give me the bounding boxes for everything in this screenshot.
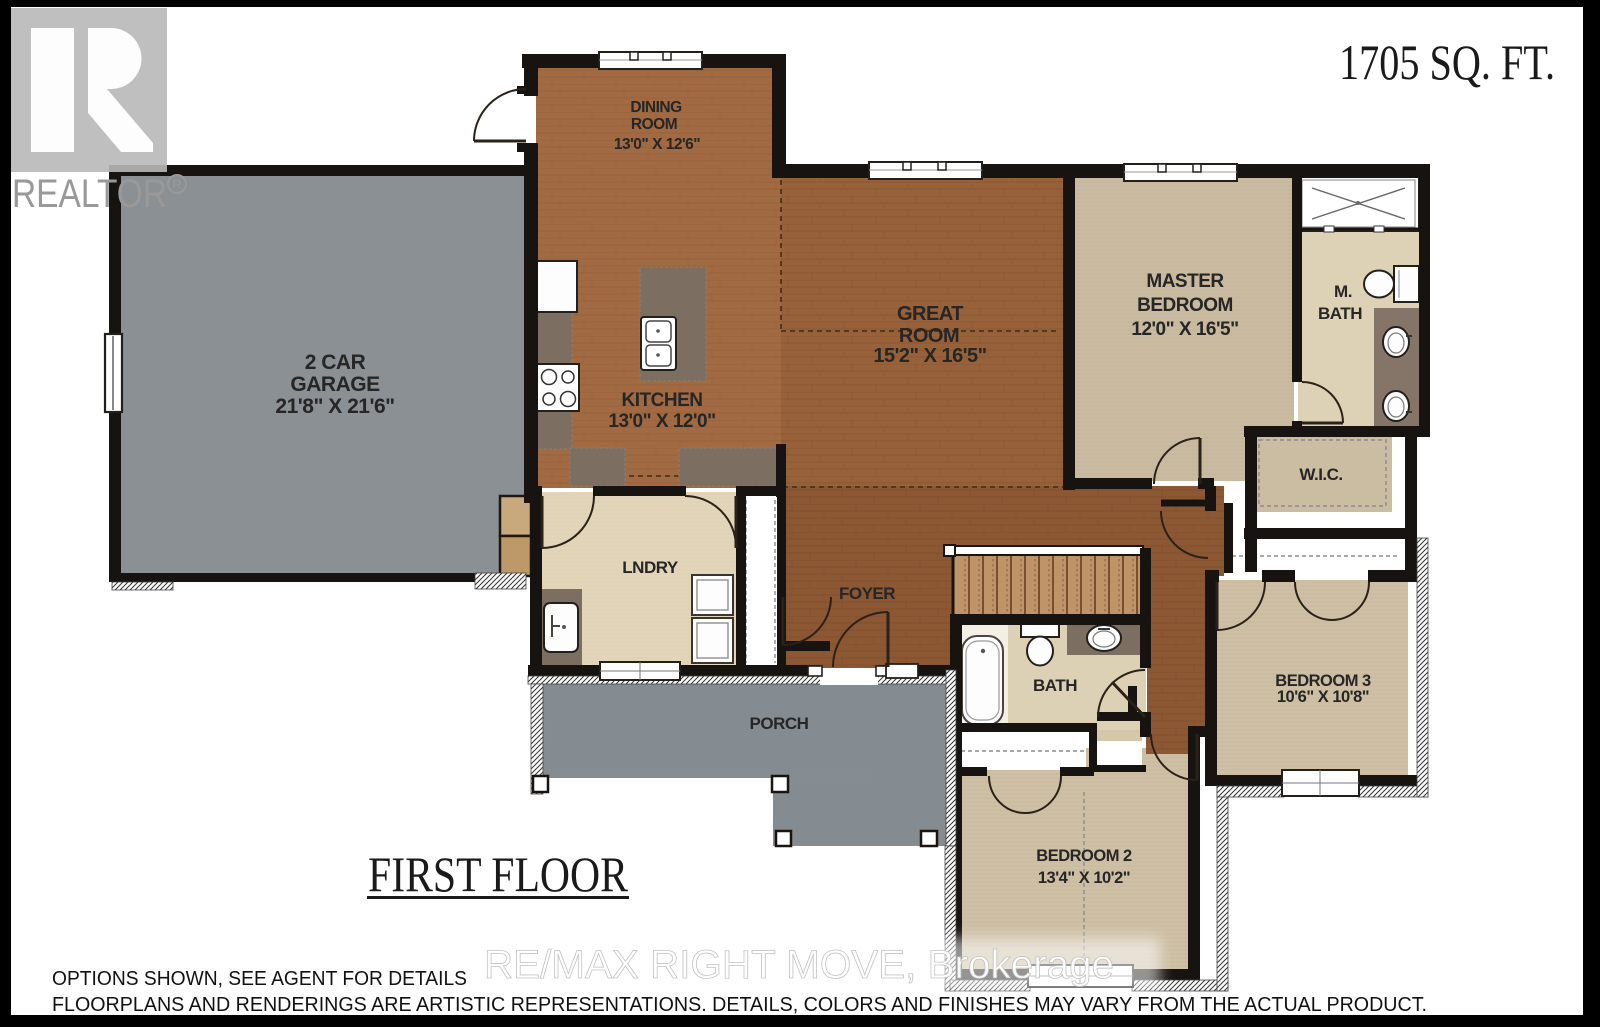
svg-text:LNDRY: LNDRY	[622, 558, 679, 577]
svg-text:BATH: BATH	[1033, 676, 1077, 695]
svg-text:GARAGE: GARAGE	[290, 373, 380, 396]
svg-text:R: R	[172, 177, 181, 192]
svg-text:ROOM: ROOM	[631, 116, 677, 133]
svg-text:BATH: BATH	[1318, 304, 1362, 323]
svg-text:FOYER: FOYER	[839, 584, 895, 603]
svg-text:13'0" X 12'0": 13'0" X 12'0"	[608, 411, 715, 432]
svg-text:10'6" X 10'8": 10'6" X 10'8"	[1277, 688, 1369, 706]
svg-text:PORCH: PORCH	[750, 714, 809, 733]
svg-text:15'2" X 16'5": 15'2" X 16'5"	[873, 345, 986, 367]
svg-text:KITCHEN: KITCHEN	[622, 390, 703, 411]
svg-text:W.I.C.: W.I.C.	[1299, 465, 1342, 484]
svg-text:DINING: DINING	[630, 99, 682, 116]
svg-text:21'8" X 21'6": 21'8" X 21'6"	[275, 395, 394, 418]
svg-text:12'0" X 16'5": 12'0" X 16'5"	[1131, 319, 1238, 340]
svg-text:BEDROOM: BEDROOM	[1137, 295, 1233, 316]
svg-text:MASTER: MASTER	[1146, 271, 1224, 292]
svg-text:ROOM: ROOM	[899, 325, 959, 347]
svg-text:2 CAR: 2 CAR	[305, 351, 366, 374]
svg-text:13'4" X 10'2": 13'4" X 10'2"	[1038, 869, 1130, 887]
svg-text:1705 SQ. FT.: 1705 SQ. FT.	[1339, 34, 1555, 90]
svg-text:M.: M.	[1334, 282, 1352, 301]
svg-text:BEDROOM 2: BEDROOM 2	[1036, 847, 1132, 865]
svg-text:OPTIONS SHOWN, SEE AGENT FOR D: OPTIONS SHOWN, SEE AGENT FOR DETAILS	[52, 968, 467, 990]
svg-text:FLOORPLANS AND RENDERINGS ARE: FLOORPLANS AND RENDERINGS ARE ARTISTIC R…	[52, 994, 1427, 1016]
svg-text:FIRST FLOOR: FIRST FLOOR	[368, 846, 629, 902]
svg-text:GREAT: GREAT	[897, 303, 963, 325]
svg-text:13'0" X 12'6": 13'0" X 12'6"	[614, 136, 700, 153]
svg-text:RE/MAX RIGHT MOVE, Brokerage: RE/MAX RIGHT MOVE, Brokerage	[484, 943, 1114, 987]
svg-text:REALTOR: REALTOR	[12, 172, 167, 216]
